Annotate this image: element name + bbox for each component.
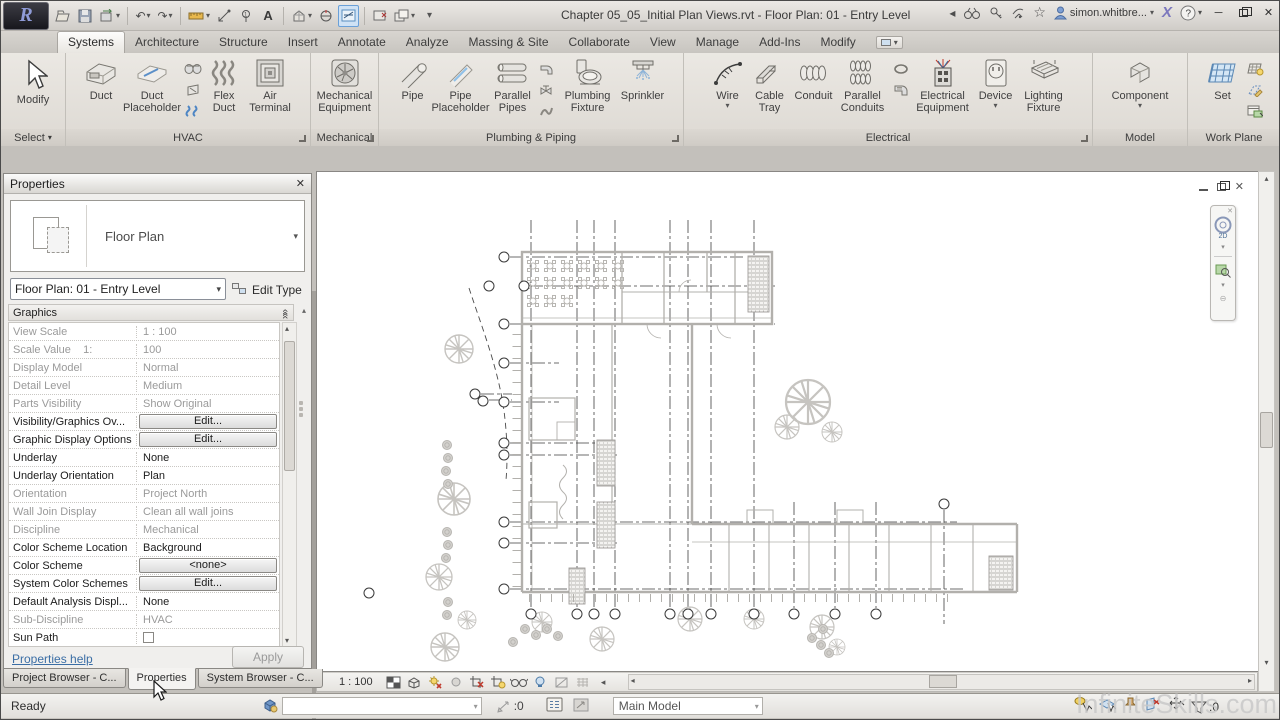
main-model-combo[interactable]: Main Model ▾ — [613, 697, 763, 715]
select-by-face-icon — [1144, 696, 1162, 712]
scroll-down-icon: ▾ — [1259, 658, 1274, 667]
worksets-icon — [261, 697, 278, 713]
duct-icon — [83, 58, 119, 88]
convert-to-flex-duct-icon — [185, 104, 201, 118]
design-options-count: :0 — [514, 699, 524, 713]
electrical-small-stack — [890, 56, 912, 99]
satellite-icon — [1011, 6, 1025, 20]
panel-label-model[interactable]: Model — [1093, 129, 1187, 146]
panel-divider[interactable] — [312, 291, 316, 720]
star-icon: ☆ — [1033, 4, 1046, 21]
apply-button[interactable]: Apply — [232, 646, 304, 668]
save-icon — [78, 9, 92, 23]
property-value-button[interactable]: Edit... — [139, 414, 277, 429]
view-window-controls: ✕ — [1199, 180, 1244, 193]
select-pinned-button[interactable] — [1122, 696, 1138, 717]
design-options-dialog-icon — [546, 697, 563, 712]
duct-placeholder-icon — [134, 58, 170, 88]
property-row: Color Scheme LocationBackground — [9, 539, 279, 557]
device-button[interactable]: Device ▾ — [974, 56, 1018, 111]
status-text: Ready — [11, 699, 46, 713]
window-title: Chapter 05_05_Initial Plan Views.rvt - F… — [561, 8, 910, 22]
ribbon: Modify Select ▾ Duct Duct Placeholder — [1, 53, 1280, 146]
property-value: Show Original — [139, 398, 211, 410]
save-button[interactable] — [75, 5, 95, 27]
main-model-value: Main Model — [619, 699, 681, 713]
property-value[interactable]: Background — [139, 542, 202, 554]
help-button[interactable]: ?▾ — [1180, 5, 1202, 21]
set-work-plane-button[interactable]: Set — [1203, 56, 1243, 104]
navbar-zoom-menu-icon[interactable]: ▾ — [1221, 281, 1225, 289]
analytical-model-icon — [554, 676, 569, 689]
parallel-conduits-button[interactable]: Parallel Conduits — [837, 56, 889, 116]
close-hidden-windows-button[interactable] — [370, 5, 390, 27]
component-button[interactable]: Component ▾ — [1109, 56, 1171, 111]
graphics-section-header[interactable]: Graphics «« — [8, 304, 294, 321]
flex-duct-button[interactable]: Flex Duct — [205, 56, 243, 116]
lighting-fixture-button[interactable]: Lighting Fixture — [1019, 56, 1069, 116]
show-work-plane-button[interactable] — [1244, 60, 1266, 78]
reveal-hidden-elements-button[interactable] — [530, 674, 551, 691]
subscription-button[interactable] — [989, 6, 1003, 20]
property-row: Detail LevelMedium — [9, 377, 279, 395]
property-value[interactable]: None — [139, 452, 169, 464]
aligned-dimension-button[interactable] — [214, 5, 234, 27]
duct-button[interactable]: Duct — [80, 56, 122, 104]
property-value: Clean all wall joins — [139, 506, 234, 518]
svg-text:?: ? — [1185, 8, 1191, 19]
properties-title: Properties — [10, 177, 65, 191]
editable-only-button[interactable] — [573, 698, 589, 715]
filter-icon — [1191, 700, 1207, 714]
panel-electrical: Wire ▾ Cable Tray Conduit Parallel Condu… — [684, 53, 1093, 146]
properties-header[interactable]: Properties ✕ — [4, 174, 311, 194]
pipe-accessory-icon — [539, 83, 554, 97]
duct-placeholder-button[interactable]: Duct Placeholder — [123, 56, 181, 116]
crop-region-visibility-button[interactable] — [488, 674, 509, 691]
crop-view-button[interactable] — [467, 674, 488, 691]
binoculars-icon — [963, 6, 981, 20]
favorites-button[interactable]: ☆ — [1033, 4, 1046, 21]
ribbon-tab-analyze[interactable]: Analyze — [396, 32, 459, 53]
sprinkler-button[interactable]: Sprinkler — [618, 56, 668, 104]
worksharing-display-button[interactable] — [572, 674, 593, 691]
switch-windows-button[interactable]: ▾ — [392, 5, 417, 27]
edit-type-button[interactable]: Edit Type — [232, 278, 308, 302]
switch-windows-icon — [394, 9, 410, 22]
panel-label-select[interactable]: Select ▾ — [1, 129, 65, 146]
panel-label-plumbing-piping[interactable]: Plumbing & Piping — [379, 129, 683, 146]
worksets-button[interactable] — [261, 697, 278, 716]
visual-style-icon — [386, 676, 401, 689]
plumbing-fixture-button[interactable]: Plumbing Fixture — [559, 56, 617, 116]
property-row: Graphic Display OptionsEdit... — [9, 431, 279, 449]
property-label: Underlay — [9, 452, 137, 464]
properties-palette: Properties ✕ Floor Plan ▾ Floor Plan: 01… — [3, 173, 312, 669]
ribbon-tab-modify[interactable]: Modify — [810, 32, 865, 53]
sun-path-button[interactable] — [425, 674, 446, 691]
property-row: Default Analysis Displ...None — [9, 593, 279, 611]
default-3d-view-icon — [291, 9, 307, 23]
selection-toggles: :0 — [1074, 696, 1219, 717]
view-control-bar: 1 : 100 ◂ ◂ ▸ — [316, 672, 1258, 692]
application-menu-button[interactable]: R — [3, 2, 49, 30]
minimize-button[interactable]: ─ — [1210, 5, 1227, 20]
communication-center-button[interactable] — [1011, 6, 1025, 20]
panel-launcher-icon — [1081, 135, 1088, 142]
properties-close-icon[interactable]: ✕ — [296, 177, 305, 190]
modify-cursor-icon — [18, 58, 48, 92]
drawing-area[interactable]: ✕ ✕ 2D ▾ ▾ ⊖ — [316, 171, 1258, 672]
panel-work-plane: Set Work Plane — [1188, 53, 1280, 146]
parallel-conduits-icon — [846, 58, 880, 88]
view-close-icon[interactable]: ✕ — [1235, 180, 1244, 193]
property-label: Orientation — [9, 488, 137, 500]
type-thumbnail — [15, 205, 87, 267]
ribbon-tab-add-ins[interactable]: Add-Ins — [749, 32, 810, 53]
tab-system-browser[interactable]: System Browser - C... — [198, 669, 323, 688]
ribbon-tab-collaborate[interactable]: Collaborate — [559, 32, 640, 53]
revit-logo-icon: R — [19, 4, 32, 27]
undo-button[interactable]: ↶▾ — [133, 5, 153, 27]
panel-model: Component ▾ Model — [1093, 53, 1188, 146]
cable-tray-fitting-icon — [893, 83, 909, 97]
shadows-icon — [406, 676, 422, 689]
sun-path-icon — [427, 675, 443, 689]
property-row: Sun Path — [9, 629, 279, 647]
pipe-accessory-button[interactable] — [536, 81, 558, 99]
panel-label-electrical[interactable]: Electrical — [684, 129, 1092, 146]
air-terminal-icon — [254, 58, 286, 88]
electrical-equipment-icon — [928, 58, 958, 88]
worksharing-display-icon — [575, 676, 590, 689]
property-value: 100 — [139, 344, 161, 356]
grid-scroll-thumb[interactable] — [284, 341, 295, 471]
temporary-hide-isolate-button[interactable] — [509, 674, 530, 691]
work-plane-viewer-button[interactable] — [1244, 102, 1266, 120]
view-scale-control[interactable]: 1 : 100 — [339, 676, 373, 688]
pipe-button[interactable]: Pipe — [395, 56, 431, 104]
property-row: Underlay OrientationPlan — [9, 467, 279, 485]
ribbon-tab-insert[interactable]: Insert — [278, 32, 328, 53]
cable-tray-icon — [753, 58, 787, 88]
sprinkler-icon — [627, 58, 659, 88]
title-bar: R ▾ ↶▾ ↷▾ ▾ 1 A ▾ ▾ ▾ Chapter 05_05_Init… — [1, 1, 1280, 31]
type-name: Floor Plan — [105, 229, 164, 244]
tab-properties[interactable]: Properties — [128, 668, 196, 690]
property-value: Mechanical — [139, 524, 199, 536]
navigation-bar: ✕ 2D ▾ ▾ ⊖ — [1210, 205, 1236, 321]
close-button[interactable]: ✕ — [1260, 5, 1277, 20]
select-underlay-button[interactable] — [1098, 696, 1116, 717]
restore-icon — [1239, 9, 1248, 17]
drag-on-selection-icon — [1168, 696, 1185, 712]
duct-accessory-button[interactable] — [182, 81, 204, 99]
design-options-dialog-button[interactable] — [546, 697, 563, 715]
navbar-2d-label: 2D — [1219, 233, 1228, 240]
property-label: Detail Level — [9, 380, 137, 392]
property-value-button[interactable]: Edit... — [139, 432, 277, 447]
panel-plumbing-piping: Pipe Pipe Placeholder Parallel Pipes — [379, 53, 684, 146]
property-value: 1 : 100 — [139, 326, 177, 338]
ribbon-tab-systems[interactable]: Systems — [57, 31, 125, 53]
pipe-placeholder-button[interactable]: Pipe Placeholder — [432, 56, 490, 116]
property-label: Sun Path — [9, 632, 137, 644]
restore-button[interactable] — [1235, 5, 1252, 20]
customize-qat-icon: ▾ — [427, 10, 432, 21]
property-label: Display Model — [9, 362, 137, 374]
panel-label-work-plane[interactable]: Work Plane — [1188, 129, 1280, 146]
ribbon-tab-manage[interactable]: Manage — [686, 32, 749, 53]
flex-pipe-icon — [539, 105, 554, 118]
electrical-equipment-button[interactable]: Electrical Equipment — [913, 56, 973, 116]
property-row: Visibility/Graphics Ov...Edit... — [9, 413, 279, 431]
panel-launcher-icon — [299, 135, 306, 142]
shadows-off-button[interactable] — [446, 674, 467, 691]
shadows-button[interactable] — [404, 674, 425, 691]
pipe-fitting-button[interactable] — [536, 60, 558, 78]
sync-icon — [99, 9, 115, 23]
thin-lines-icon — [341, 9, 356, 22]
property-label: Color Scheme Location — [9, 542, 137, 554]
property-row: Wall Join DisplayClean all wall joins — [9, 503, 279, 521]
panel-mechanical: Mechanical Equipment Mechanical — [311, 53, 379, 146]
revit-window: R ▾ ↶▾ ↷▾ ▾ 1 A ▾ ▾ ▾ Chapter 05_05_Init… — [0, 0, 1280, 720]
select-links-icon — [1074, 696, 1092, 712]
property-row: System Color SchemesEdit... — [9, 575, 279, 593]
exchange-apps-button[interactable]: X — [1162, 4, 1172, 21]
grid-splitter-handle[interactable] — [296, 374, 306, 444]
conduit-fitting-button[interactable] — [890, 60, 912, 78]
ref-plane-icon — [1246, 84, 1263, 97]
ribbon-tab-structure[interactable]: Structure — [209, 32, 278, 53]
vertical-scrollbar[interactable]: ▴ ▾ — [1258, 171, 1275, 692]
wire-icon — [712, 58, 744, 88]
type-selector[interactable]: Floor Plan ▾ — [10, 200, 305, 272]
property-row: OrientationProject North — [9, 485, 279, 503]
ribbon-display-toggle[interactable]: ▾ — [876, 36, 903, 49]
cable-tray-button[interactable]: Cable Tray — [749, 56, 791, 116]
drag-on-selection-button[interactable] — [1168, 696, 1185, 717]
open-button[interactable] — [53, 5, 73, 27]
section-button[interactable] — [316, 5, 336, 27]
panel-launcher-icon — [367, 135, 374, 142]
visual-style-button[interactable] — [383, 674, 404, 691]
dimension-icon — [217, 9, 232, 23]
select-by-face-button[interactable] — [1144, 696, 1162, 717]
instance-dropdown-icon: ▾ — [216, 284, 221, 295]
device-icon — [983, 58, 1009, 88]
property-row: View Scale1 : 100 — [9, 323, 279, 341]
active-workset-combo[interactable]: ▾ — [282, 697, 482, 715]
grid-scroll-up-icon[interactable]: ▴ — [302, 306, 306, 315]
design-options-icon — [496, 699, 512, 713]
ribbon-tab-bar: SystemsArchitectureStructureInsertAnnota… — [1, 31, 1280, 53]
property-label: Parts Visibility — [9, 398, 137, 410]
work-plane-small-stack — [1244, 56, 1266, 120]
ribbon-state-icon — [881, 39, 891, 46]
parallel-pipes-icon — [496, 58, 530, 88]
open-icon — [55, 9, 71, 23]
scroll-up-icon: ▴ — [1259, 174, 1274, 183]
dock-tab-bar: Project Browser - C... Properties System… — [3, 669, 323, 693]
design-options-control[interactable]: :0 — [496, 699, 524, 713]
flex-pipe-button[interactable] — [536, 102, 558, 120]
property-label: Color Scheme — [9, 560, 137, 572]
search-button[interactable] — [963, 6, 981, 20]
conduit-icon — [797, 58, 831, 88]
steering-wheel-icon[interactable] — [1213, 216, 1233, 234]
property-value[interactable]: None — [139, 596, 169, 608]
view-minimize-icon[interactable] — [1199, 189, 1208, 191]
vertical-scroll-thumb[interactable] — [1260, 412, 1273, 448]
air-terminal-button[interactable]: Air Terminal — [244, 56, 296, 116]
select-links-button[interactable] — [1074, 696, 1092, 717]
modify-button[interactable]: Modify — [15, 56, 51, 108]
show-work-plane-icon — [1246, 62, 1264, 76]
property-value: Medium — [139, 380, 182, 392]
property-value[interactable]: Plan — [139, 470, 165, 482]
lighting-fixture-icon — [1026, 58, 1062, 88]
property-row: UnderlayNone — [9, 449, 279, 467]
crop-region-visibility-icon — [490, 675, 506, 689]
title-back-arrow-icon[interactable]: ◂ — [949, 6, 955, 20]
hvac-small-stack — [182, 56, 204, 120]
property-checkbox[interactable] — [143, 632, 154, 643]
property-value: Project North — [139, 488, 207, 500]
view-restore-icon[interactable] — [1217, 183, 1226, 191]
help-icon: ? — [1180, 5, 1196, 21]
select-pinned-icon — [1122, 696, 1138, 712]
measure-icon — [188, 9, 205, 22]
hscroll-left-icon: ◂ — [631, 676, 635, 685]
property-grid: View Scale1 : 100Scale Value 1:100Displa… — [8, 322, 280, 647]
redo-button[interactable]: ↷▾ — [155, 5, 175, 27]
work-plane-viewer-icon — [1246, 104, 1263, 118]
key-icon — [989, 6, 1003, 20]
zoom-region-icon[interactable] — [1214, 262, 1232, 278]
conduit-button[interactable]: Conduit — [792, 56, 836, 104]
duct-fitting-icon — [184, 63, 202, 75]
plumbing-fixture-icon — [572, 58, 604, 88]
wire-button[interactable]: Wire ▾ — [708, 56, 748, 111]
undo-icon: ↶ — [135, 9, 145, 23]
panel-label-hvac[interactable]: HVAC — [66, 129, 310, 146]
mechanical-equipment-button[interactable]: Mechanical Equipment — [314, 56, 376, 116]
hide-isolate-glasses-icon — [510, 676, 528, 688]
property-label: Scale Value 1: — [9, 344, 137, 356]
plumbing-small-stack — [536, 56, 558, 120]
component-icon — [1123, 58, 1157, 88]
type-selector-dropdown-icon[interactable]: ▾ — [293, 231, 298, 242]
thin-lines-button[interactable] — [338, 5, 359, 27]
property-row: Display ModelNormal — [9, 359, 279, 377]
pipe-icon — [397, 58, 429, 88]
customize-qat-button[interactable]: ▾ — [419, 5, 439, 27]
shadows-off-icon — [449, 676, 463, 689]
navbar-collapse-icon[interactable]: ⊖ — [1220, 294, 1227, 303]
sync-with-central-button[interactable]: ▾ — [97, 5, 122, 27]
property-row: Parts VisibilityShow Original — [9, 395, 279, 413]
panel-hvac: Duct Duct Placeholder Flex Duct — [66, 53, 311, 146]
flex-duct-icon — [209, 58, 239, 88]
mechanical-equipment-icon — [329, 58, 361, 88]
horizontal-scroll-thumb[interactable] — [929, 675, 957, 688]
sign-in-control[interactable]: simon.whitbre... ▾ — [1054, 6, 1154, 20]
user-icon — [1054, 6, 1067, 20]
view-instance-combo[interactable]: Floor Plan: 01 - Entry Level ▾ — [10, 278, 226, 300]
property-row: Scale Value 1:100 — [9, 341, 279, 359]
parallel-pipes-button[interactable]: Parallel Pipes — [491, 56, 535, 116]
duct-fitting-button[interactable] — [182, 60, 204, 78]
navbar-close-icon[interactable]: ✕ — [1227, 207, 1233, 215]
redo-icon: ↷ — [157, 9, 167, 23]
property-value: Normal — [139, 362, 178, 374]
analytical-model-button[interactable] — [551, 674, 572, 691]
quick-access-toolbar: ▾ ↶▾ ↷▾ ▾ 1 A ▾ ▾ ▾ — [53, 5, 439, 27]
panel-label-mechanical[interactable]: Mechanical — [311, 129, 378, 146]
ribbon-tab-massing-site[interactable]: Massing & Site — [459, 32, 559, 53]
tag-button[interactable]: 1 — [236, 5, 256, 27]
ribbon-tab-annotate[interactable]: Annotate — [328, 32, 396, 53]
pipe-placeholder-icon — [445, 58, 477, 88]
tab-project-browser[interactable]: Project Browser - C... — [3, 669, 126, 688]
property-label: Visibility/Graphics Ov... — [9, 416, 137, 428]
ribbon-tab-view[interactable]: View — [640, 32, 686, 53]
property-value: HVAC — [139, 614, 173, 626]
hscroll-right-icon: ▸ — [1248, 676, 1252, 685]
conduit-fitting-icon — [893, 63, 909, 75]
properties-help-link[interactable]: Properties help — [12, 652, 93, 666]
measure-button[interactable]: ▾ — [186, 5, 212, 27]
panel-select: Modify Select ▾ — [1, 53, 66, 146]
property-label: Underlay Orientation — [9, 470, 137, 482]
convert-to-flex-duct-button[interactable] — [182, 102, 204, 120]
property-label: Discipline — [9, 524, 137, 536]
tag-icon: 1 — [239, 9, 253, 23]
property-value-button[interactable]: <none> — [139, 558, 277, 573]
property-row: DisciplineMechanical — [9, 521, 279, 539]
property-label: Graphic Display Options — [9, 434, 137, 446]
text-button[interactable]: A — [258, 5, 278, 27]
reveal-hidden-icon — [534, 676, 546, 689]
selection-filter-button[interactable]: :0 — [1191, 700, 1219, 714]
viewbar-left-arrow[interactable]: ◂ — [593, 674, 614, 691]
section-collapse-icon[interactable]: «« — [279, 308, 291, 316]
ribbon-tab-architecture[interactable]: Architecture — [125, 32, 209, 53]
property-value-button[interactable]: Edit... — [139, 576, 277, 591]
instance-name: Floor Plan: 01 - Entry Level — [15, 282, 160, 296]
pipe-fitting-icon — [539, 63, 554, 76]
property-label: Wall Join Display — [9, 506, 137, 518]
set-work-plane-icon — [1205, 58, 1241, 88]
horizontal-scrollbar[interactable]: ◂ ▸ — [628, 674, 1255, 690]
editable-only-icon — [573, 698, 589, 712]
navbar-wheel-menu-icon[interactable]: ▾ — [1221, 243, 1225, 251]
close-hidden-windows-icon — [373, 9, 388, 22]
default-3d-view-button[interactable]: ▾ — [289, 5, 314, 27]
text-icon: A — [263, 8, 272, 23]
ref-plane-button[interactable] — [1244, 81, 1266, 99]
property-grid-scrollbar[interactable]: ▴ ▾ — [282, 322, 297, 647]
filter-count: :0 — [1209, 700, 1219, 714]
workspace: ✕ ✕ 2D ▾ ▾ ⊖ ▴ ▾ 1 : 100 — [1, 146, 1280, 693]
cable-tray-fitting-button[interactable] — [890, 81, 912, 99]
user-name: simon.whitbre... — [1070, 7, 1147, 19]
floor-plan-drawing — [317, 172, 1257, 671]
property-label: View Scale — [9, 326, 137, 338]
crop-view-icon — [469, 675, 485, 689]
